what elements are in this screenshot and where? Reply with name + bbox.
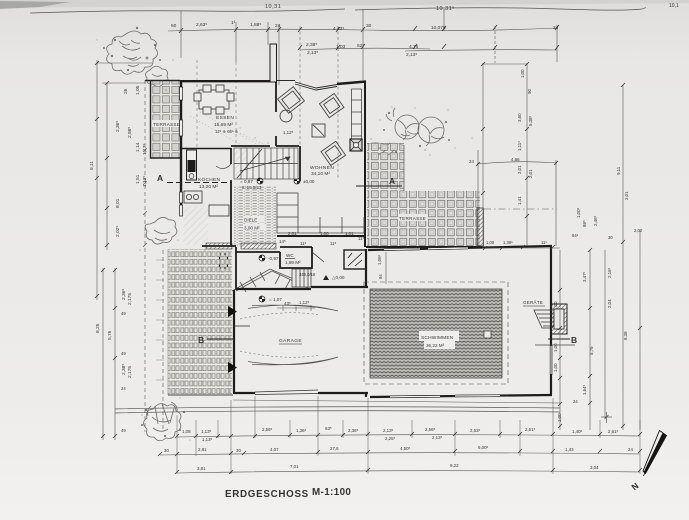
svg-text:2,01: 2,01 — [528, 169, 533, 178]
svg-text:2,13⁵: 2,13⁵ — [307, 50, 318, 56]
svg-text:5,76: 5,76 — [107, 330, 113, 340]
svg-text:9,11: 9,11 — [89, 161, 95, 170]
svg-text:1,13⁵: 1,13⁵ — [201, 429, 212, 434]
svg-text:2,01: 2,01 — [517, 165, 522, 174]
svg-text:2,01: 2,01 — [288, 231, 297, 236]
svg-text:30: 30 — [366, 23, 372, 29]
svg-text:15,69 M²: 15,69 M² — [214, 122, 233, 128]
svg-text:10,31⁵: 10,31⁵ — [436, 5, 455, 12]
svg-text:1,14: 1,14 — [135, 142, 141, 152]
svg-text:30: 30 — [608, 235, 613, 240]
svg-text:3,60: 3,60 — [517, 113, 522, 122]
svg-text:1,12⁵: 1,12⁵ — [299, 300, 310, 305]
svg-text:88⁵: 88⁵ — [582, 220, 587, 227]
svg-text:43⁵: 43⁵ — [284, 301, 291, 306]
svg-text:27,6: 27,6 — [330, 446, 339, 451]
svg-text:1,00: 1,00 — [553, 363, 558, 372]
svg-text:2,25⁵: 2,25⁵ — [385, 436, 396, 441]
svg-text:49: 49 — [121, 311, 126, 316]
svg-text:1,41: 1,41 — [517, 196, 522, 205]
svg-text:GARAGE: GARAGE — [279, 338, 302, 344]
svg-text:DIELE: DIELE — [244, 218, 257, 223]
svg-text:= 0,97: = 0,97 — [240, 179, 253, 184]
svg-text:2,04: 2,04 — [607, 299, 612, 308]
svg-text:4,07: 4,07 — [270, 447, 279, 452]
svg-text:50: 50 — [171, 23, 177, 29]
svg-text:1,00: 1,00 — [520, 69, 525, 78]
svg-text:10,075: 10,075 — [431, 25, 446, 31]
svg-text:B: B — [571, 335, 577, 345]
svg-text:26: 26 — [123, 88, 129, 94]
svg-text:9,11: 9,11 — [616, 166, 621, 175]
svg-text:2,56⁵: 2,56⁵ — [425, 427, 436, 432]
svg-text:△0,00: △0,00 — [332, 275, 345, 280]
svg-text:2,38⁵: 2,38⁵ — [306, 42, 317, 48]
svg-text:49: 49 — [121, 428, 126, 433]
svg-text:3,81: 3,81 — [197, 466, 206, 471]
svg-text:7,01: 7,01 — [290, 464, 299, 469]
svg-text:8,01: 8,01 — [115, 198, 121, 208]
svg-text:90: 90 — [527, 89, 532, 94]
svg-text:24: 24 — [573, 399, 578, 404]
svg-text:64⁵: 64⁵ — [572, 233, 579, 238]
svg-text:A: A — [389, 176, 395, 186]
svg-text:3,04: 3,04 — [590, 465, 599, 470]
svg-text:2,13⁵: 2,13⁵ — [383, 428, 394, 433]
svg-text:24: 24 — [628, 447, 633, 452]
svg-text:11⁵: 11⁵ — [541, 240, 547, 245]
svg-text:= 1,07: = 1,07 — [269, 297, 282, 302]
svg-text:4,50⁵: 4,50⁵ — [400, 446, 411, 451]
svg-text:1,51: 1,51 — [135, 174, 141, 184]
svg-text:1,00⁵: 1,00⁵ — [576, 207, 581, 218]
svg-text:2,63⁵: 2,63⁵ — [196, 22, 207, 28]
svg-text:1,88⁵: 1,88⁵ — [250, 22, 261, 28]
svg-text:4,76: 4,76 — [409, 44, 419, 50]
svg-text:1³: 1³ — [231, 20, 236, 26]
svg-text:1,17⁵: 1,17⁵ — [142, 144, 148, 155]
svg-text:94: 94 — [378, 274, 383, 279]
svg-text:2,38⁵: 2,38⁵ — [121, 364, 127, 375]
svg-text:1,03: 1,03 — [336, 44, 346, 50]
svg-text:24: 24 — [121, 386, 126, 391]
svg-text:B: B — [198, 335, 204, 345]
svg-text:ERDGESCHOSS: ERDGESCHOSS — [225, 489, 309, 500]
svg-text:1,40⁵: 1,40⁵ — [572, 429, 583, 434]
svg-text:1,36⁵: 1,36⁵ — [296, 428, 307, 433]
svg-text:WC: WC — [286, 253, 294, 258]
svg-text:49: 49 — [121, 351, 126, 356]
svg-text:GERÄTE: GERÄTE — [523, 299, 543, 305]
svg-text:8,38: 8,38 — [623, 331, 628, 340]
svg-text:1,64⁵: 1,64⁵ — [582, 384, 587, 395]
svg-text:2,36⁵: 2,36⁵ — [115, 121, 121, 132]
svg-text:1,11⁵: 1,11⁵ — [517, 141, 522, 151]
svg-text:4,43⁵: 4,43⁵ — [333, 26, 344, 32]
svg-text:-0,97: -0,97 — [268, 256, 279, 261]
svg-text:1,06⁵: 1,06⁵ — [377, 254, 382, 265]
svg-text:349,0/18: 349,0/18 — [299, 272, 316, 277]
svg-text:1,13⁵: 1,13⁵ — [202, 437, 213, 442]
svg-text:11⁵: 11⁵ — [300, 241, 307, 246]
svg-text:2,36⁵: 2,36⁵ — [121, 289, 127, 300]
svg-text:9,22: 9,22 — [450, 463, 459, 468]
svg-text:2,13⁵: 2,13⁵ — [432, 435, 443, 440]
svg-text:TERRASSE: TERRASSE — [399, 216, 426, 221]
svg-text:1,08: 1,08 — [182, 429, 191, 434]
svg-text:14⁵: 14⁵ — [279, 239, 286, 244]
svg-text:34,10 M²: 34,10 M² — [311, 171, 330, 177]
svg-text:30: 30 — [236, 448, 241, 453]
svg-text:11⁵: 11⁵ — [358, 236, 365, 241]
svg-text:2,02⁵: 2,02⁵ — [115, 226, 121, 237]
svg-text:10,31: 10,31 — [265, 4, 281, 10]
svg-text:24: 24 — [469, 159, 474, 164]
svg-text:2,46⁵: 2,46⁵ — [593, 215, 598, 226]
svg-text:4,86: 4,86 — [511, 157, 520, 162]
svg-text:24: 24 — [553, 25, 559, 31]
svg-text:2,175: 2,175 — [127, 366, 133, 378]
svg-text:2,56⁵: 2,56⁵ — [262, 427, 273, 432]
svg-text:1,00: 1,00 — [553, 343, 558, 352]
svg-text:2,98⁵: 2,98⁵ — [127, 127, 133, 138]
svg-text:1,00: 1,00 — [557, 413, 562, 422]
svg-text:30: 30 — [164, 448, 169, 453]
svg-text:A: A — [157, 173, 163, 183]
svg-text:M-1:100: M-1:100 — [312, 487, 351, 498]
svg-text:TERRASSE: TERRASSE — [153, 122, 180, 127]
svg-text:1,05: 1,05 — [135, 85, 141, 95]
svg-text:2,16⁵: 2,16⁵ — [607, 267, 612, 278]
svg-text:2,175: 2,175 — [127, 293, 133, 305]
svg-text:SCHWIMMEN: SCHWIMMEN — [421, 335, 454, 341]
svg-text:1,13⁵: 1,13⁵ — [142, 176, 148, 187]
svg-text:1,89 M²: 1,89 M² — [285, 260, 301, 265]
svg-text:±0,00: ±0,00 — [303, 179, 315, 184]
svg-text:WOHNEN: WOHNEN — [310, 165, 334, 171]
svg-text:2,61⁵: 2,61⁵ — [525, 427, 536, 432]
svg-text:6,00⁵: 6,00⁵ — [478, 445, 489, 450]
svg-text:1,00: 1,00 — [553, 301, 558, 310]
svg-text:63⁵: 63⁵ — [325, 426, 332, 431]
svg-text:5,38⁵: 5,38⁵ — [528, 115, 533, 126]
svg-text:3,47⁵: 3,47⁵ — [582, 271, 587, 282]
svg-text:2,36⁵: 2,36⁵ — [348, 428, 359, 433]
svg-text:2,02: 2,02 — [634, 228, 643, 233]
svg-text:3,00 M²: 3,00 M² — [244, 226, 260, 231]
svg-text:1,00: 1,00 — [486, 240, 495, 245]
svg-text:1,01: 1,01 — [345, 231, 354, 236]
svg-text:ESSEN: ESSEN — [216, 115, 234, 121]
svg-text:5,76: 5,76 — [589, 346, 594, 355]
svg-text:1,12⁵: 1,12⁵ — [283, 130, 294, 135]
svg-text:11⁵: 11⁵ — [330, 241, 337, 246]
svg-text:24: 24 — [275, 23, 281, 29]
svg-text:10,1: 10,1 — [669, 3, 679, 9]
svg-text:2,81: 2,81 — [198, 447, 207, 452]
svg-text:12⁵ ⊕ 66⁵ ⊕: 12⁵ ⊕ 66⁵ ⊕ — [215, 129, 238, 134]
svg-text:2,61⁵: 2,61⁵ — [608, 429, 619, 434]
svg-text:1,43: 1,43 — [565, 447, 574, 452]
svg-text:1,00: 1,00 — [320, 231, 329, 236]
svg-text:1,36⁵: 1,36⁵ — [503, 240, 513, 245]
svg-text:13,20 M²: 13,20 M² — [199, 184, 218, 190]
svg-text:8,25: 8,25 — [95, 323, 101, 333]
svg-text:36,22 M²: 36,22 M² — [426, 343, 445, 348]
svg-text:3,01: 3,01 — [624, 191, 629, 200]
svg-text:2,13⁵: 2,13⁵ — [406, 52, 417, 58]
svg-text:2,53⁵: 2,53⁵ — [470, 428, 481, 433]
